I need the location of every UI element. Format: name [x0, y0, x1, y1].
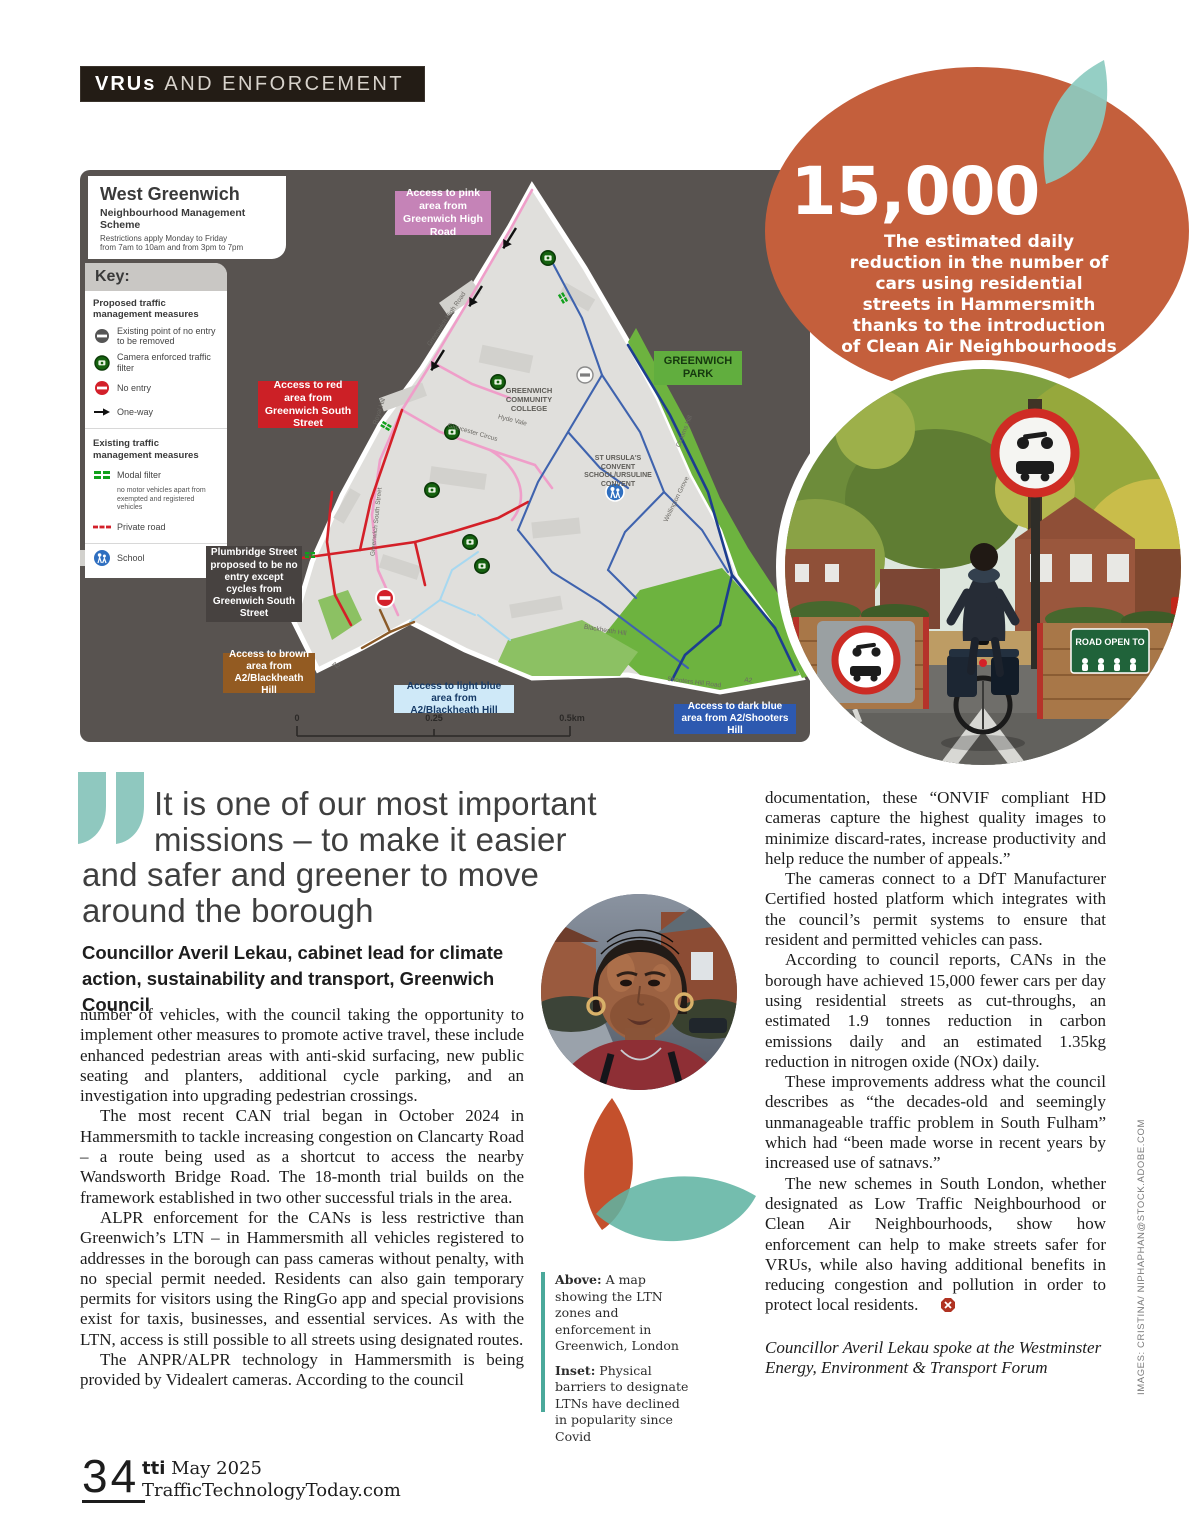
- paragraph: documentation, these “ONVIF compliant HD…: [765, 788, 1106, 869]
- map-note-2: from 7am to 10am and from 3pm to 7pm: [100, 243, 276, 252]
- article-column-left: number of vehicles, with the council tak…: [80, 1005, 524, 1391]
- paragraph-text: The new schemes in South London, whether…: [765, 1174, 1106, 1315]
- caption-inset-label: Inset:: [555, 1363, 595, 1378]
- image-credits: IMAGES: CRISTINA/ NIPHAPHAN@STOCK.ADOBE.…: [1136, 1119, 1147, 1395]
- teal-leaf-icon: [1018, 58, 1118, 198]
- key-item-label: School: [117, 553, 145, 563]
- leaf-decoration: [558, 1096, 758, 1254]
- label-college: GREENWICH COMMUNITY COLLEGE: [488, 383, 570, 416]
- footer-site: TrafficTechnologyToday.com: [142, 1480, 401, 1502]
- paragraph: ALPR enforcement for the CANs is less re…: [80, 1208, 524, 1350]
- private-road-icon: [93, 518, 111, 536]
- key-item-private: Private road: [85, 515, 227, 539]
- paragraph: number of vehicles, with the council tak…: [80, 1005, 524, 1106]
- paragraph: The most recent CAN trial began in Octob…: [80, 1106, 524, 1207]
- key-item-oneway: One-way: [85, 400, 227, 424]
- map-note-1: Restrictions apply Monday to Friday: [100, 234, 276, 243]
- camera-filter-icon: [93, 354, 111, 372]
- paragraph: The cameras connect to a DfT Manufacture…: [765, 869, 1106, 950]
- label-red-access: Access to red area from Greenwich South …: [258, 381, 358, 428]
- cyclist-photo-art: ROAD OPEN TO: [785, 369, 1181, 765]
- councillor-portrait: [541, 894, 737, 1090]
- quote-line: It is one of our most important: [82, 786, 722, 822]
- quote-line: missions – to make it easier: [82, 822, 722, 858]
- key-heading: Key:: [85, 263, 227, 291]
- stat-circle: 15,000 The estimated daily reduction in …: [765, 67, 1189, 395]
- svg-text:0: 0: [294, 713, 299, 723]
- label-darkblue-access: Access to dark blue area from A2/Shooter…: [674, 704, 796, 734]
- modal-filter-icon: [93, 466, 111, 484]
- svg-text:0.5km: 0.5km: [559, 713, 585, 723]
- caption-text: Above: A map showing the LTN zones and e…: [555, 1272, 693, 1445]
- no-entry-icon: [93, 379, 111, 397]
- caption-above: Above: A map showing the LTN zones and e…: [555, 1272, 679, 1353]
- paragraph: According to council reports, CANs in th…: [765, 950, 1106, 1072]
- footer-issue-line: tti May 2025: [142, 1458, 401, 1480]
- caption-bar: [541, 1272, 545, 1412]
- caption-inset: Inset: Physical barriers to designate LT…: [555, 1363, 693, 1446]
- school-icon: [93, 549, 111, 567]
- svg-text:A2: A2: [744, 676, 753, 684]
- section-banner-bold: VRUs: [95, 73, 156, 96]
- quote-line: and safer and greener to move: [82, 857, 722, 893]
- key-item-label: One-way: [117, 407, 153, 417]
- label-plumbridge: Plumbridge Street proposed to be no entr…: [206, 546, 302, 622]
- cyclist-photo: ROAD OPEN TO: [776, 360, 1190, 774]
- paragraph: The ANPR/ALPR technology in Hammersmith …: [80, 1350, 524, 1391]
- key-item-modal: Modal filter: [85, 463, 227, 487]
- one-way-arrow-icon: [93, 403, 111, 421]
- stat-value: 15,000: [765, 153, 1189, 230]
- stat-description: The estimated daily reduction in the num…: [841, 232, 1117, 358]
- key-item-label: Private road: [117, 522, 166, 532]
- key-item-label: No entry: [117, 383, 151, 393]
- article-column-right: documentation, these “ONVIF compliant HD…: [765, 788, 1106, 1378]
- ltn-map: Greenwich High Road Royal Hill Greenwich…: [80, 170, 810, 742]
- removed-no-entry-icon: [577, 367, 593, 383]
- map-title: West Greenwich: [100, 184, 276, 205]
- key-item-label: Modal filter: [117, 470, 161, 480]
- footer-brand: tti: [142, 1458, 165, 1479]
- key-proposed-heading: Proposed traffic management measures: [85, 291, 227, 323]
- paragraph: These improvements address what the coun…: [765, 1072, 1106, 1173]
- svg-text:A2: A2: [331, 661, 342, 671]
- label-brown-access: Access to brown area from A2/Blackheath …: [223, 653, 315, 693]
- photo-caption: Above: A map showing the LTN zones and e…: [541, 1272, 693, 1445]
- end-of-article-icon: [921, 1297, 935, 1311]
- road-open-sign-text: ROAD OPEN TO: [1075, 637, 1144, 647]
- article-footnote: Councillor Averil Lekau spoke at the Wes…: [765, 1338, 1106, 1379]
- map-subtitle: Neighbourhood Management Scheme: [100, 207, 276, 231]
- key-divider: [85, 543, 227, 544]
- paragraph-with-endmark: The new schemes in South London, whether…: [765, 1174, 1106, 1316]
- key-divider: [85, 428, 227, 429]
- section-banner-rest: AND ENFORCEMENT: [164, 73, 404, 96]
- portrait-art: [541, 894, 737, 1090]
- key-item-noentry: No entry: [85, 376, 227, 400]
- page-number: 34: [82, 1452, 145, 1503]
- footer-publication: tti May 2025 TrafficTechnologyToday.com: [142, 1458, 401, 1502]
- map-title-card: West Greenwich Neighbourhood Management …: [88, 176, 286, 259]
- label-convent: ST URSULA'S CONVENT SCHOOL/URSULINE CONV…: [576, 452, 660, 492]
- key-existing-heading: Existing traffic management measures: [85, 431, 227, 463]
- removed-no-entry-icon: [93, 327, 111, 345]
- key-item-label: Camera enforced traffic filter: [117, 352, 219, 373]
- label-pink-access: Access to pink area from Greenwich High …: [395, 191, 491, 235]
- label-lightblue-access: Access to light blue area from A2/Blackh…: [394, 685, 514, 713]
- map-key: Key: Proposed traffic management measure…: [85, 263, 227, 578]
- caption-above-label: Above:: [555, 1272, 602, 1287]
- key-modal-note: no motor vehicles apart from exempted an…: [85, 487, 227, 515]
- key-item-label: Existing point of no entry to be removed: [117, 326, 219, 347]
- map-scale-bar: [297, 726, 570, 736]
- footer-issue: May 2025: [165, 1458, 262, 1479]
- section-banner: VRUs AND ENFORCEMENT: [80, 66, 425, 102]
- label-greenwich-park: GREENWICH PARK: [654, 351, 742, 385]
- key-item-removed: Existing point of no entry to be removed: [85, 323, 227, 350]
- key-item-camera: Camera enforced traffic filter: [85, 349, 227, 376]
- magazine-page: VRUs AND ENFORCEMENT: [0, 0, 1200, 1532]
- plumbridge-no-entry-icon: [376, 589, 394, 607]
